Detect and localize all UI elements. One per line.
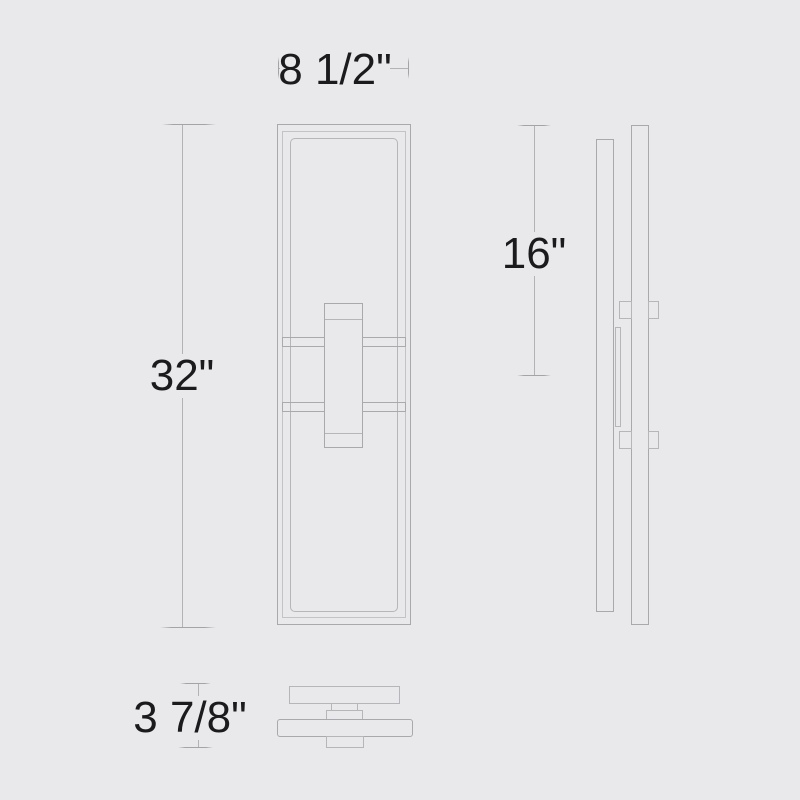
bottom-view-backplate-lower [326, 736, 364, 748]
side-view-back-panel [596, 139, 614, 612]
side-view-front-frame [631, 125, 649, 625]
bottom-view-inner-panel-bar [289, 686, 400, 704]
side-view-backplate-body [615, 327, 621, 427]
bottom-view-frame-bar [277, 719, 413, 737]
depth-dimension-label: 3 7/8" [135, 696, 245, 740]
height-dimension-tick-bottom [160, 627, 216, 628]
side-height-dimension-tick-top [517, 125, 551, 126]
width-dimension-tick-right [408, 57, 409, 79]
depth-dimension-tick-bottom [178, 747, 213, 748]
dimension-diagram: 8 1/2" 32" 16" 3 7/8" [0, 0, 800, 800]
front-view-backplate [324, 303, 363, 448]
width-dimension-label: 8 1/2" [280, 49, 390, 91]
side-view-backplate-tab-bottom-left [619, 431, 632, 449]
front-view-backplate-top-cap-line [325, 319, 362, 320]
depth-dimension-tick-top [180, 683, 211, 684]
side-view-backplate-tab-top-right [648, 301, 659, 319]
side-height-dimension-label: 16" [503, 232, 565, 276]
side-view-backplate-tab-bottom-right [648, 431, 659, 449]
height-dimension-tick-top [162, 124, 216, 125]
side-view-backplate-tab-top-left [619, 301, 632, 319]
side-height-dimension-tick-bottom [517, 375, 551, 376]
front-view-backplate-bottom-cap-line [325, 433, 362, 434]
height-dimension-label: 32" [146, 354, 218, 398]
